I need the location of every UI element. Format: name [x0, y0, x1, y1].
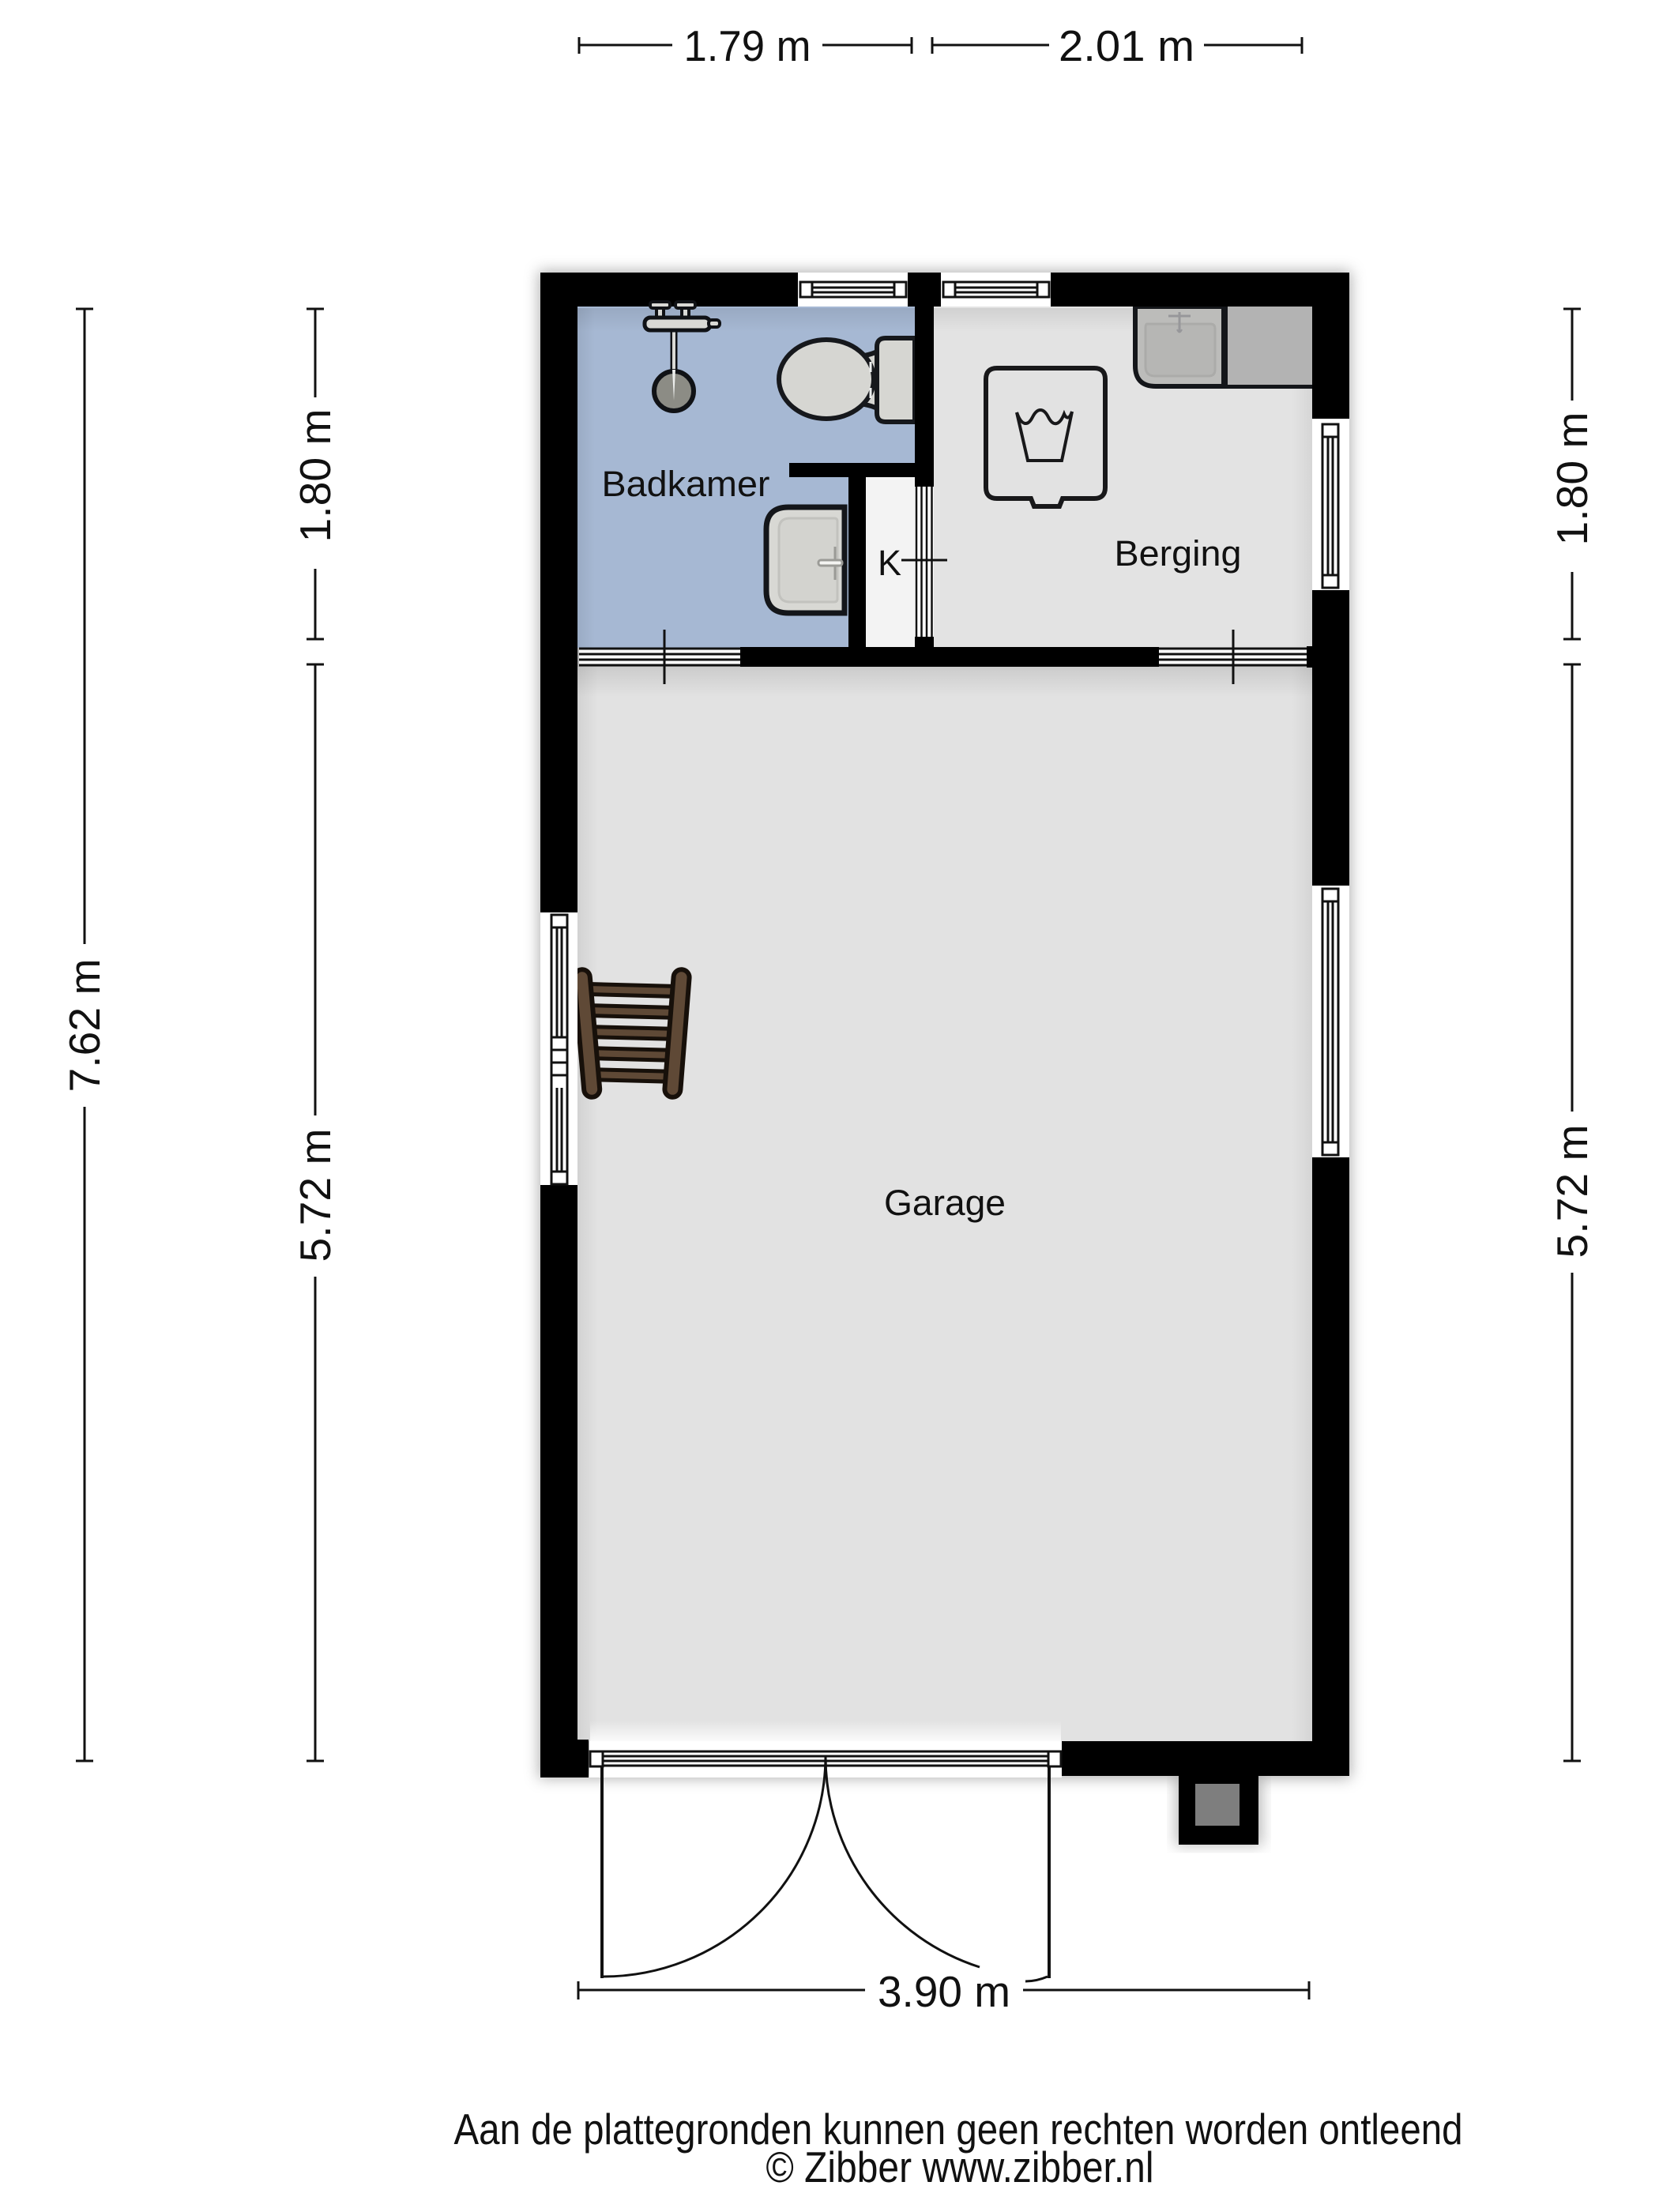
svg-text:5.72 m: 5.72 m — [291, 1129, 340, 1262]
svg-text:3.90 m: 3.90 m — [878, 1967, 1010, 2016]
svg-text:5.72 m: 5.72 m — [1548, 1125, 1597, 1258]
svg-text:K: K — [878, 543, 901, 583]
svg-text:Badkamer: Badkamer — [602, 464, 770, 504]
svg-text:© Zibber www.zibber.nl: © Zibber www.zibber.nl — [766, 2142, 1154, 2191]
svg-text:7.62 m: 7.62 m — [60, 959, 109, 1093]
svg-text:1.79 m: 1.79 m — [684, 21, 811, 70]
svg-text:2.01 m: 2.01 m — [1059, 21, 1194, 70]
svg-text:1.80 m: 1.80 m — [291, 409, 340, 543]
svg-text:Berging: Berging — [1115, 533, 1242, 574]
svg-text:Garage: Garage — [884, 1183, 1006, 1223]
svg-text:1.80 m: 1.80 m — [1548, 412, 1597, 546]
